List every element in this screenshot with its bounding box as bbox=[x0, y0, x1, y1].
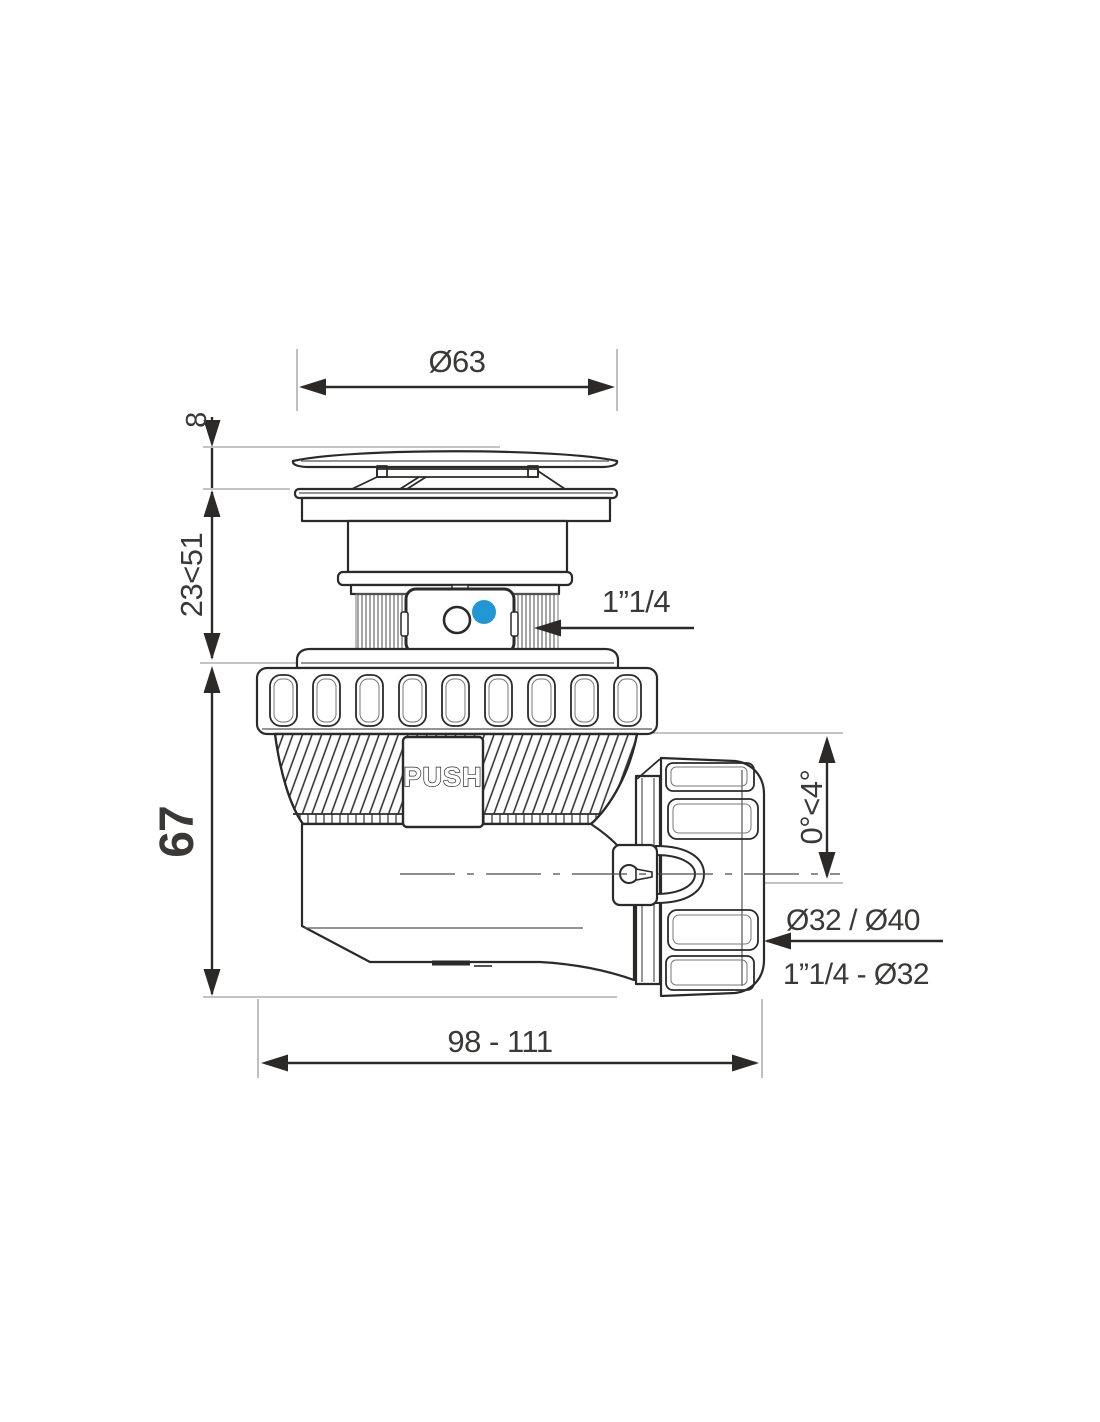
tilt-range-label: 0°<4° bbox=[794, 770, 829, 845]
stem-lip bbox=[338, 572, 572, 585]
technical-drawing-page: PUSH bbox=[0, 0, 1100, 1422]
cap-diameter-label: Ø63 bbox=[428, 344, 485, 379]
keyhole-tab bbox=[613, 845, 657, 905]
outlet-thread-label: 1”1/4 - Ø32 bbox=[783, 958, 929, 991]
body-height-label: 67 bbox=[151, 806, 204, 857]
cap-height-label: 8 bbox=[181, 412, 213, 428]
cap-stem bbox=[348, 521, 567, 572]
push-label: PUSH bbox=[403, 762, 482, 792]
shoulder-plate bbox=[297, 649, 618, 668]
white-indicator-circle bbox=[444, 607, 470, 633]
indicator-plate bbox=[401, 585, 518, 653]
trap-body-assembly: PUSH bbox=[257, 649, 657, 980]
drain-technical-drawing: PUSH bbox=[0, 0, 1100, 1422]
push-tab[interactable]: PUSH bbox=[403, 737, 483, 827]
outlet-sizes-label: Ø32 / Ø40 bbox=[786, 904, 920, 937]
flange-body bbox=[302, 498, 610, 521]
adjust-height-label: 23<51 bbox=[174, 533, 209, 618]
blue-indicator-dot bbox=[472, 600, 496, 624]
overall-length-label: 98 - 111 bbox=[447, 1024, 552, 1059]
inlet-thread-label: 1”1/4 bbox=[602, 584, 670, 619]
